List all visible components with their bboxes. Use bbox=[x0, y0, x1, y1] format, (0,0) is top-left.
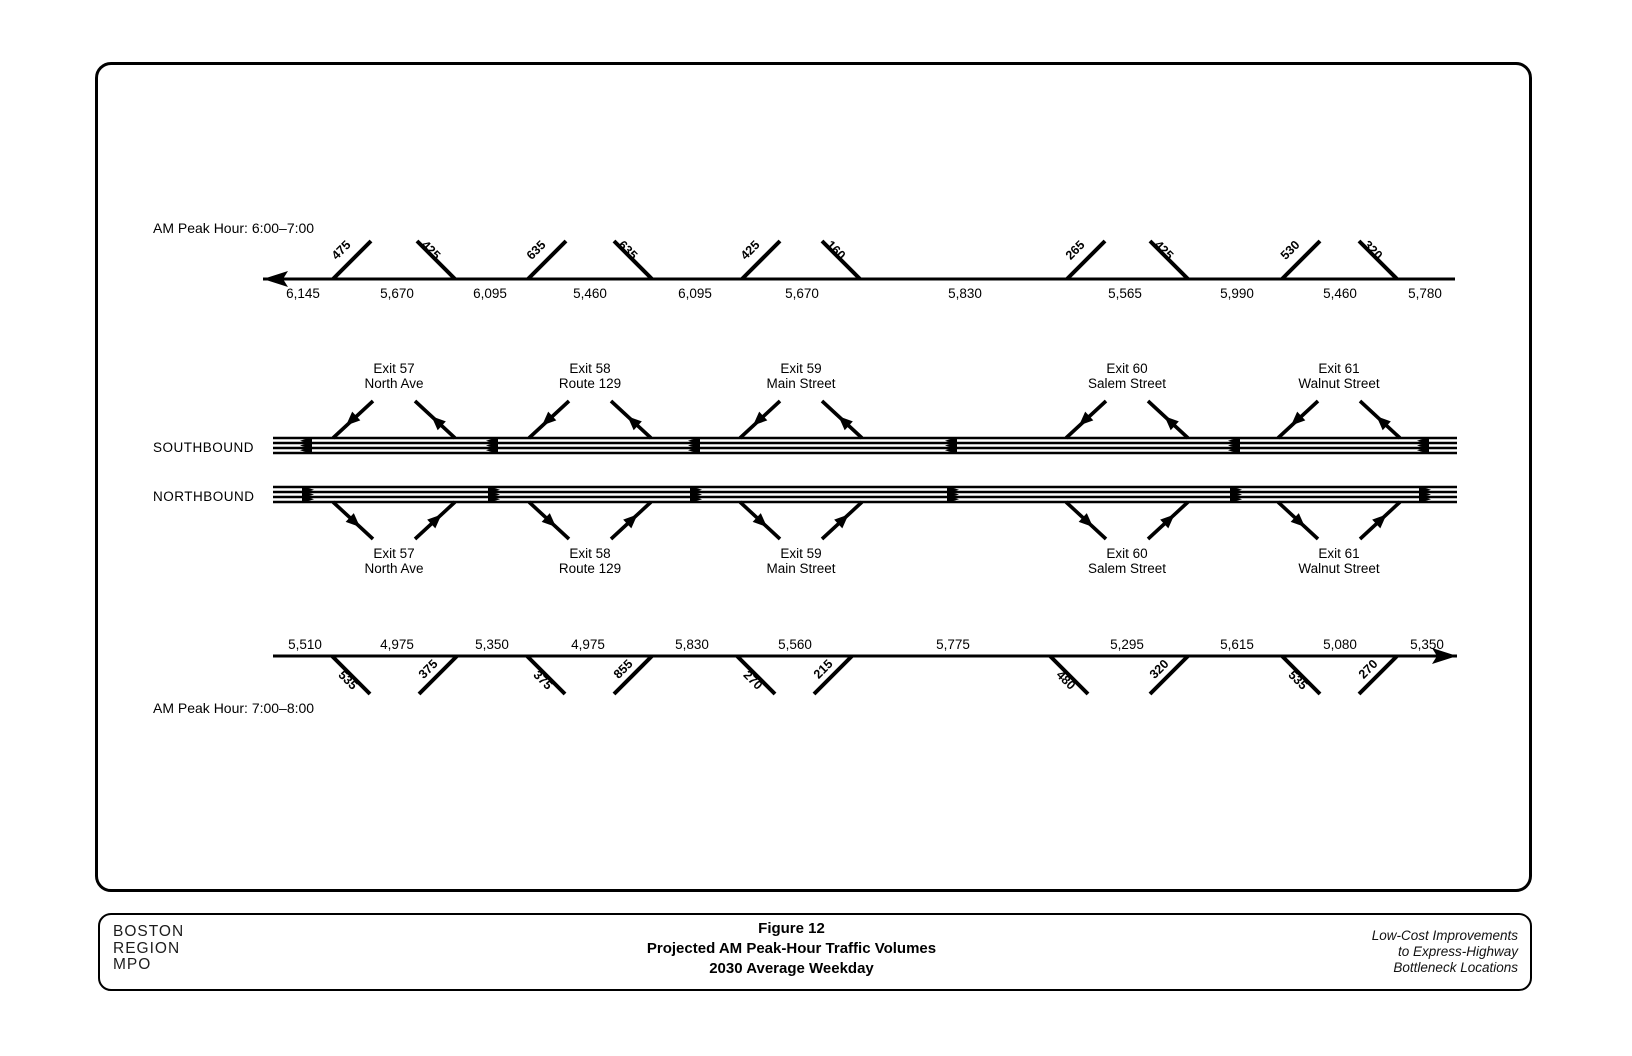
mainline-volume-bottom: 5,830 bbox=[675, 637, 709, 652]
exit-street-label-bottom: Route 129 bbox=[559, 561, 621, 576]
mainline-volume-top: 5,670 bbox=[785, 286, 819, 301]
ramp-volume-top: 425 bbox=[1152, 238, 1177, 263]
exit-number-label-top: Exit 59 bbox=[780, 361, 821, 376]
figure-title: Projected AM Peak-Hour Traffic Volumes bbox=[73, 939, 1510, 959]
mainline-volume-bottom: 5,615 bbox=[1220, 637, 1254, 652]
traffic-diagram: AM Peak Hour: 6:00–7:006,1455,6706,0955,… bbox=[0, 0, 1632, 1056]
mainline-volume-top: 6,145 bbox=[286, 286, 320, 301]
figure-title-block: Figure 12 Projected AM Peak-Hour Traffic… bbox=[73, 919, 1510, 979]
ramp-volume-top: 160 bbox=[824, 238, 849, 263]
project-name-line: to Express-Highway bbox=[1372, 944, 1518, 960]
exit-street-label-bottom: Salem Street bbox=[1088, 561, 1166, 576]
northbound-label: NORTHBOUND bbox=[153, 489, 255, 504]
ramp-volume-bottom: 535 bbox=[336, 668, 361, 693]
exit-street-label-bottom: North Ave bbox=[364, 561, 423, 576]
mainline-volume-top: 5,780 bbox=[1408, 286, 1442, 301]
mainline-volume-bottom: 5,295 bbox=[1110, 637, 1144, 652]
southbound-label: SOUTHBOUND bbox=[153, 440, 254, 455]
mainline-volume-bottom: 5,510 bbox=[288, 637, 322, 652]
mainline-volume-top: 6,095 bbox=[473, 286, 507, 301]
mainline-volume-bottom: 4,975 bbox=[571, 637, 605, 652]
mainline-volume-top: 5,460 bbox=[573, 286, 607, 301]
project-name-line: Low-Cost Improvements bbox=[1372, 928, 1518, 944]
figure-subtitle: 2030 Average Weekday bbox=[73, 959, 1510, 979]
mainline-volume-bottom: 5,775 bbox=[936, 637, 970, 652]
ramp-volume-top: 265 bbox=[1063, 238, 1088, 263]
exit-number-label-bottom: Exit 58 bbox=[569, 546, 610, 561]
ramp-volume-top: 425 bbox=[419, 238, 444, 263]
mainline-volume-top: 5,830 bbox=[948, 286, 982, 301]
ramp-volume-top: 635 bbox=[616, 238, 641, 263]
ramp-volume-top: 475 bbox=[329, 238, 354, 263]
exit-number-label-top: Exit 57 bbox=[373, 361, 414, 376]
mainline-volume-bottom: 5,350 bbox=[475, 637, 509, 652]
exit-street-label-top: Salem Street bbox=[1088, 376, 1166, 391]
exit-number-label-bottom: Exit 57 bbox=[373, 546, 414, 561]
ramp-volume-top: 425 bbox=[738, 238, 763, 263]
peak-hour-label-bottom: AM Peak Hour: 7:00–8:00 bbox=[153, 700, 314, 716]
ramp-volume-top: 320 bbox=[1361, 238, 1386, 263]
ramp-volume-top: 635 bbox=[524, 238, 549, 263]
exit-street-label-top: North Ave bbox=[364, 376, 423, 391]
peak-hour-label-top: AM Peak Hour: 6:00–7:00 bbox=[153, 220, 314, 236]
mainline-volume-bottom: 5,080 bbox=[1323, 637, 1357, 652]
project-name-block: Low-Cost Improvements to Express-Highway… bbox=[1372, 928, 1518, 976]
exit-number-label-top: Exit 61 bbox=[1318, 361, 1359, 376]
figure-number: Figure 12 bbox=[73, 919, 1510, 939]
exit-number-label-top: Exit 60 bbox=[1106, 361, 1147, 376]
figure-page: AM Peak Hour: 6:00–7:006,1455,6706,0955,… bbox=[0, 0, 1632, 1056]
mainline-volume-top: 6,095 bbox=[678, 286, 712, 301]
mainline-volume-top: 5,460 bbox=[1323, 286, 1357, 301]
exit-street-label-top: Main Street bbox=[766, 376, 835, 391]
ramp-volume-bottom: 375 bbox=[531, 668, 556, 693]
ramp-volume-top: 530 bbox=[1278, 238, 1303, 263]
mainline-volume-top: 5,565 bbox=[1108, 286, 1142, 301]
ramp-volume-bottom: 270 bbox=[741, 668, 766, 693]
exit-street-label-top: Route 129 bbox=[559, 376, 621, 391]
mainline-volume-bottom: 5,350 bbox=[1410, 637, 1444, 652]
mainline-volume-top: 5,990 bbox=[1220, 286, 1254, 301]
exit-street-label-bottom: Main Street bbox=[766, 561, 835, 576]
mainline-volume-top: 5,670 bbox=[380, 286, 414, 301]
exit-street-label-bottom: Walnut Street bbox=[1298, 561, 1380, 576]
mainline-volume-bottom: 4,975 bbox=[380, 637, 414, 652]
exit-number-label-bottom: Exit 60 bbox=[1106, 546, 1147, 561]
ramp-volume-bottom: 480 bbox=[1054, 668, 1079, 693]
exit-street-label-top: Walnut Street bbox=[1298, 376, 1380, 391]
exit-number-label-bottom: Exit 61 bbox=[1318, 546, 1359, 561]
ramp-volume-bottom: 535 bbox=[1286, 668, 1311, 693]
mainline-volume-bottom: 5,560 bbox=[778, 637, 812, 652]
project-name-line: Bottleneck Locations bbox=[1372, 960, 1518, 976]
exit-number-label-top: Exit 58 bbox=[569, 361, 610, 376]
exit-number-label-bottom: Exit 59 bbox=[780, 546, 821, 561]
